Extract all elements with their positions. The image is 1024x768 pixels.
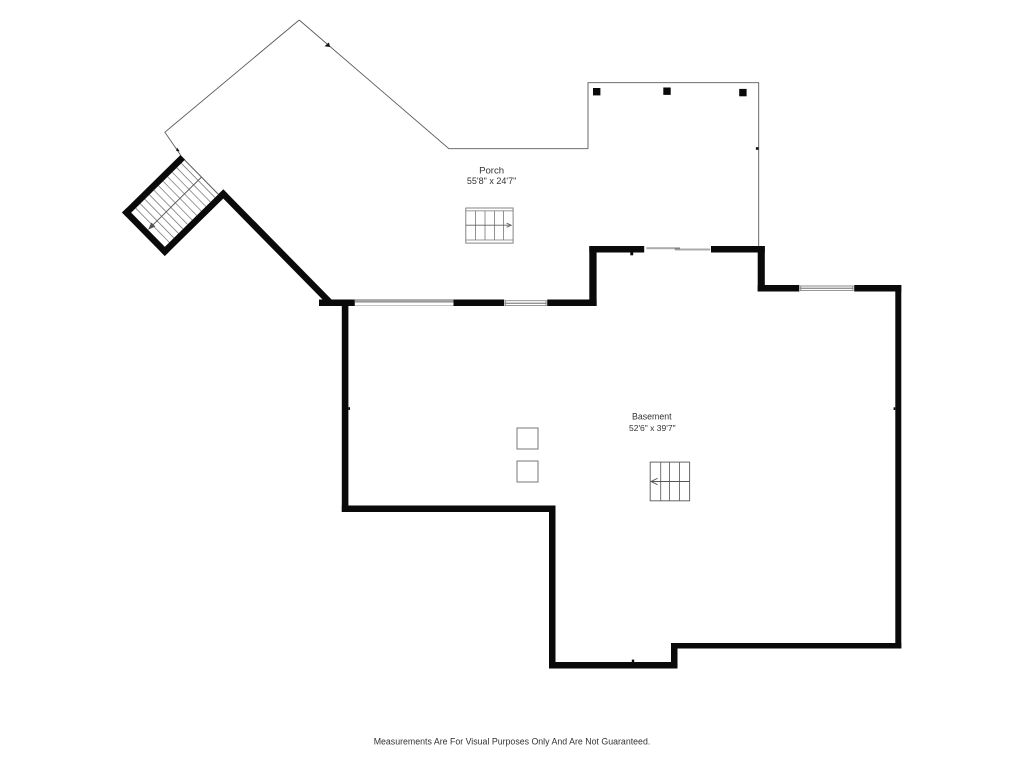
svg-text:52'6" x 39'7": 52'6" x 39'7" <box>629 423 676 433</box>
svg-text:55'8" x 24'7": 55'8" x 24'7" <box>467 176 516 186</box>
svg-text:Basement: Basement <box>632 411 672 421</box>
svg-text:Porch: Porch <box>479 165 504 176</box>
svg-text:Measurements Are For Visual Pu: Measurements Are For Visual Purposes Onl… <box>374 736 651 746</box>
